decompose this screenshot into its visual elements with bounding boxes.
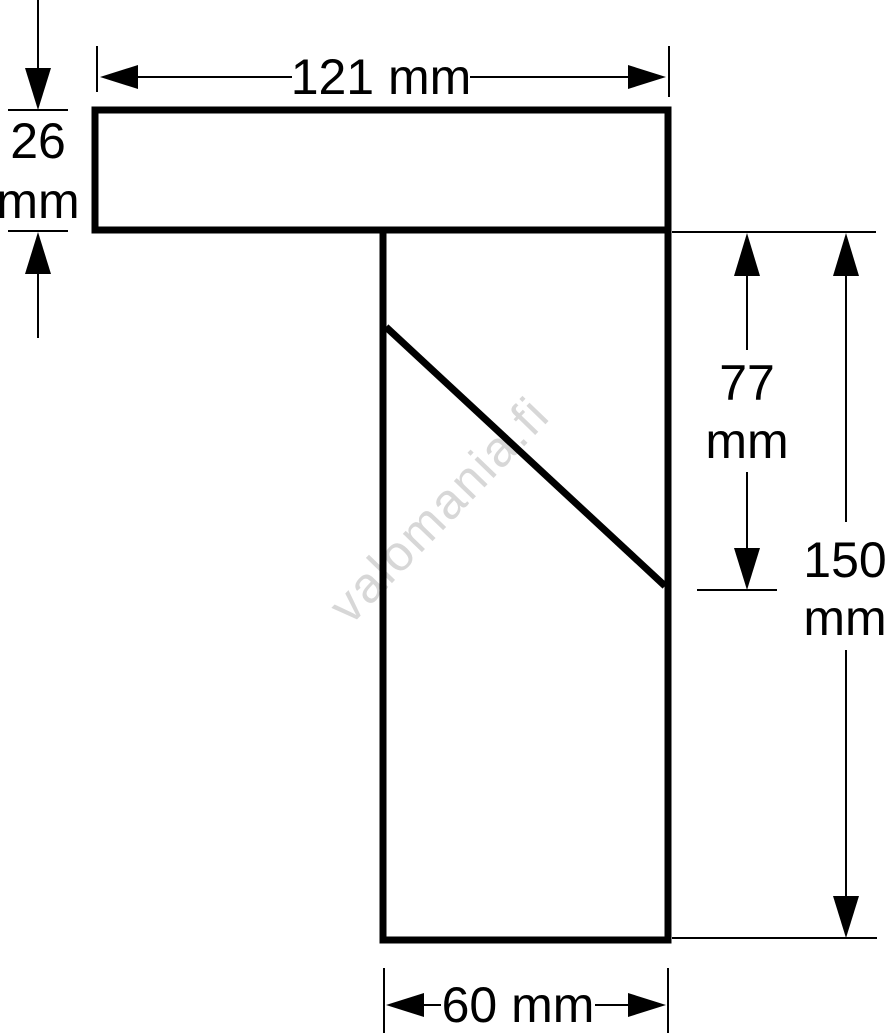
watermark-text: valomania.fi bbox=[318, 386, 560, 634]
dimension-total-height: 150 mm bbox=[803, 233, 885, 938]
arrow-up-icon bbox=[833, 233, 859, 276]
dimension-flange-width: 121 mm bbox=[97, 46, 669, 105]
profile-dimension-drawing: valomania.fi 121 mm 26 mm bbox=[0, 0, 885, 1035]
arrow-down-icon bbox=[734, 548, 760, 590]
arrow-left-icon bbox=[386, 993, 424, 1017]
arrow-down-icon bbox=[833, 896, 859, 938]
arrow-right-icon bbox=[628, 993, 666, 1017]
drawing-canvas: valomania.fi 121 mm 26 mm bbox=[0, 0, 885, 1035]
dimension-label-web-upper-value: 77 bbox=[719, 355, 775, 411]
arrow-left-icon bbox=[100, 65, 138, 89]
dimension-label-web-width: 60 mm bbox=[442, 977, 595, 1033]
dimension-label-total-height-value: 150 bbox=[803, 532, 885, 588]
profile-outline bbox=[95, 110, 668, 940]
arrow-down-icon bbox=[25, 68, 51, 110]
dimension-label-flange-thickness-unit: mm bbox=[0, 173, 80, 229]
dimension-label-web-upper-unit: mm bbox=[705, 413, 788, 469]
dimension-label-flange-thickness-value: 26 bbox=[10, 113, 66, 169]
dimension-flange-thickness: 26 mm bbox=[0, 0, 80, 338]
dimension-label-flange-width: 121 mm bbox=[291, 49, 472, 105]
dimension-label-total-height-unit: mm bbox=[803, 590, 885, 646]
dimension-web-width: 60 mm bbox=[384, 968, 668, 1033]
arrow-up-icon bbox=[734, 233, 760, 276]
arrow-right-icon bbox=[628, 65, 666, 89]
arrow-up-icon bbox=[25, 232, 51, 274]
dimension-web-upper: 77 mm bbox=[697, 233, 789, 590]
web-outline bbox=[383, 230, 668, 940]
flange-outline bbox=[95, 110, 668, 230]
